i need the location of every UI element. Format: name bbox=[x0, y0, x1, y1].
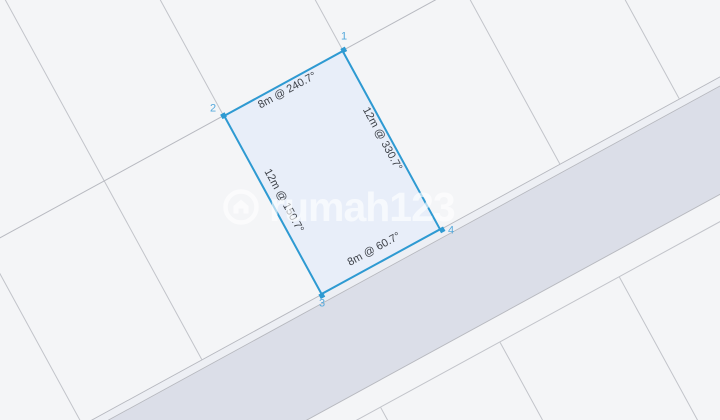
watermark: rumah123 bbox=[222, 183, 455, 231]
annotation-layer: 1 2 3 4 rumah123 bbox=[0, 0, 720, 420]
watermark-text: rumah123 bbox=[269, 183, 455, 231]
rumah123-logo-icon bbox=[222, 188, 260, 226]
corner-number-3: 3 bbox=[319, 299, 325, 310]
corner-number-1: 1 bbox=[341, 32, 347, 43]
corner-number-2: 2 bbox=[210, 104, 216, 115]
plot-map: 8m @ 240.7° 12m @ 330.7° 12m @ 150.7° 8m… bbox=[0, 0, 720, 420]
